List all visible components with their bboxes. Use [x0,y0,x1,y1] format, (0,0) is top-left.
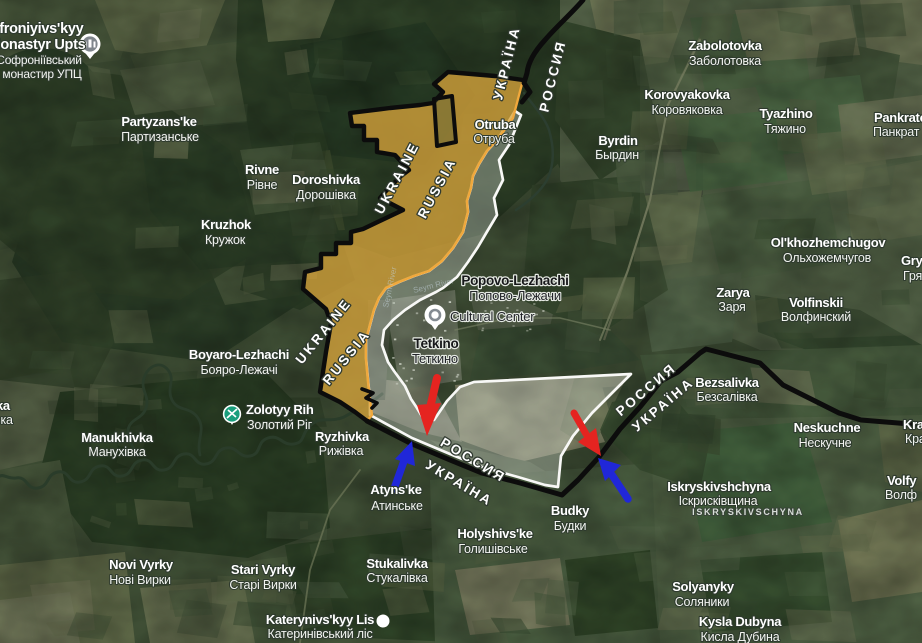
svg-text:вка: вка [0,413,13,427]
svg-text:Korovyakovka: Korovyakovka [644,87,730,102]
svg-text:Atyns'ke: Atyns'ke [370,482,421,497]
svg-text:Нові Вирки: Нові Вирки [109,573,171,587]
svg-text:Ryzhivka: Ryzhivka [315,429,370,444]
svg-text:Партизанське: Партизанське [121,130,199,144]
svg-text:Tyazhino: Tyazhino [760,106,813,121]
svg-text:Рижівка: Рижівка [319,444,364,458]
svg-text:Кра: Кра [905,432,922,446]
svg-text:Byrdin: Byrdin [598,133,638,148]
svg-text:Манухівка: Манухівка [88,445,145,459]
svg-text:Заря: Заря [718,300,745,314]
svg-text:Budky: Budky [551,503,590,518]
svg-text:Тяжино: Тяжино [764,122,806,136]
svg-text:Голишівське: Голишівське [458,542,528,556]
svg-text:Дорошівка: Дорошівка [296,188,356,202]
svg-text:Бырдин: Бырдин [595,148,639,162]
svg-text:Novi Vyrky: Novi Vyrky [109,557,174,572]
svg-text:Кисла Дубина: Кисла Дубина [701,630,780,643]
svg-text:Рівне: Рівне [247,178,278,192]
svg-text:Kruzhok: Kruzhok [201,217,252,232]
svg-text:Золотий Ріг: Золотий Ріг [247,418,313,432]
svg-text:Панкрат: Панкрат [873,125,920,139]
svg-text:Стукалівка: Стукалівка [366,571,427,585]
svg-text:Zarya: Zarya [716,285,750,300]
svg-text:Iskryskivshchyna: Iskryskivshchyna [667,479,772,494]
svg-text:Volfinskii: Volfinskii [789,295,843,310]
svg-text:Катеринівський ліс: Катеринівський ліс [268,627,373,641]
svg-text:Monastyr Upts: Monastyr Upts [0,37,86,53]
svg-text:Волфинский: Волфинский [781,310,851,324]
svg-text:Бояро-Лежачі: Бояро-Лежачі [201,363,278,377]
svg-text:Otruba: Otruba [475,117,517,132]
svg-text:Gry: Gry [901,253,922,268]
svg-text:Соляники: Соляники [675,595,730,609]
svg-text:Коровяковка: Коровяковка [651,103,722,117]
svg-text:Stukalivka: Stukalivka [366,556,428,571]
svg-text:Stari Vyrky: Stari Vyrky [231,562,296,577]
svg-text:Іскрисківщина: Іскрисківщина [679,494,758,508]
svg-text:Manukhivka: Manukhivka [81,430,153,445]
svg-text:Гря: Гря [903,269,922,283]
svg-text:Кружок: Кружок [205,233,246,247]
svg-text:Partyzans'ke: Partyzans'ke [121,114,196,129]
svg-text:Будки: Будки [554,519,587,533]
svg-text:Cultural Center: Cultural Center [450,309,535,324]
svg-text:Boyaro-Lezhachi: Boyaro-Lezhachi [189,347,289,362]
svg-text:Попово-Лежачи: Попово-Лежачи [469,288,561,303]
svg-text:Pankrato: Pankrato [874,110,922,125]
svg-text:Popovo-Lezhachi: Popovo-Lezhachi [461,273,568,288]
svg-text:ISKRYSKIVSCHYNA: ISKRYSKIVSCHYNA [692,507,804,517]
svg-text:монастир УПЦ: монастир УПЦ [2,67,81,81]
svg-text:Отруба: Отруба [473,132,515,146]
svg-text:Волф: Волф [885,488,917,502]
svg-text:Solyanyky: Solyanyky [672,579,735,594]
svg-text:Безсалівка: Безсалівка [696,390,757,404]
svg-text:ka: ka [0,398,11,413]
svg-text:ofroniyivs'kyy: ofroniyivs'kyy [0,21,84,37]
svg-text:Doroshivka: Doroshivka [292,172,361,187]
svg-text:Теткино: Теткино [412,351,458,366]
svg-text:Zolotyy Rih: Zolotyy Rih [246,402,314,417]
svg-text:Tetkino: Tetkino [414,336,459,351]
svg-text:Katerynivs'kyy Lis: Katerynivs'kyy Lis [266,612,374,627]
svg-text:Софроніївський: Софроніївський [0,53,82,67]
svg-text:Kras: Kras [903,417,922,432]
svg-text:Holyshivs'ke: Holyshivs'ke [457,526,532,541]
svg-text:Neskuchne: Neskuchne [794,420,861,435]
svg-text:Ольхожемчугов: Ольхожемчугов [783,251,872,265]
svg-text:Bezsalivka: Bezsalivka [695,375,760,390]
svg-text:Rivne: Rivne [245,162,279,177]
svg-text:Старі Вирки: Старі Вирки [229,578,297,592]
svg-text:Атинське: Атинське [371,499,423,513]
svg-text:Нескучне: Нескучне [799,436,852,450]
svg-text:Ol'khozhemchugov: Ol'khozhemchugov [771,235,887,250]
svg-text:Заболотовка: Заболотовка [689,54,761,68]
svg-text:Kysla Dubyna: Kysla Dubyna [699,614,782,629]
svg-text:Zabolotovka: Zabolotovka [688,38,762,53]
svg-text:Volfy: Volfy [887,473,917,488]
